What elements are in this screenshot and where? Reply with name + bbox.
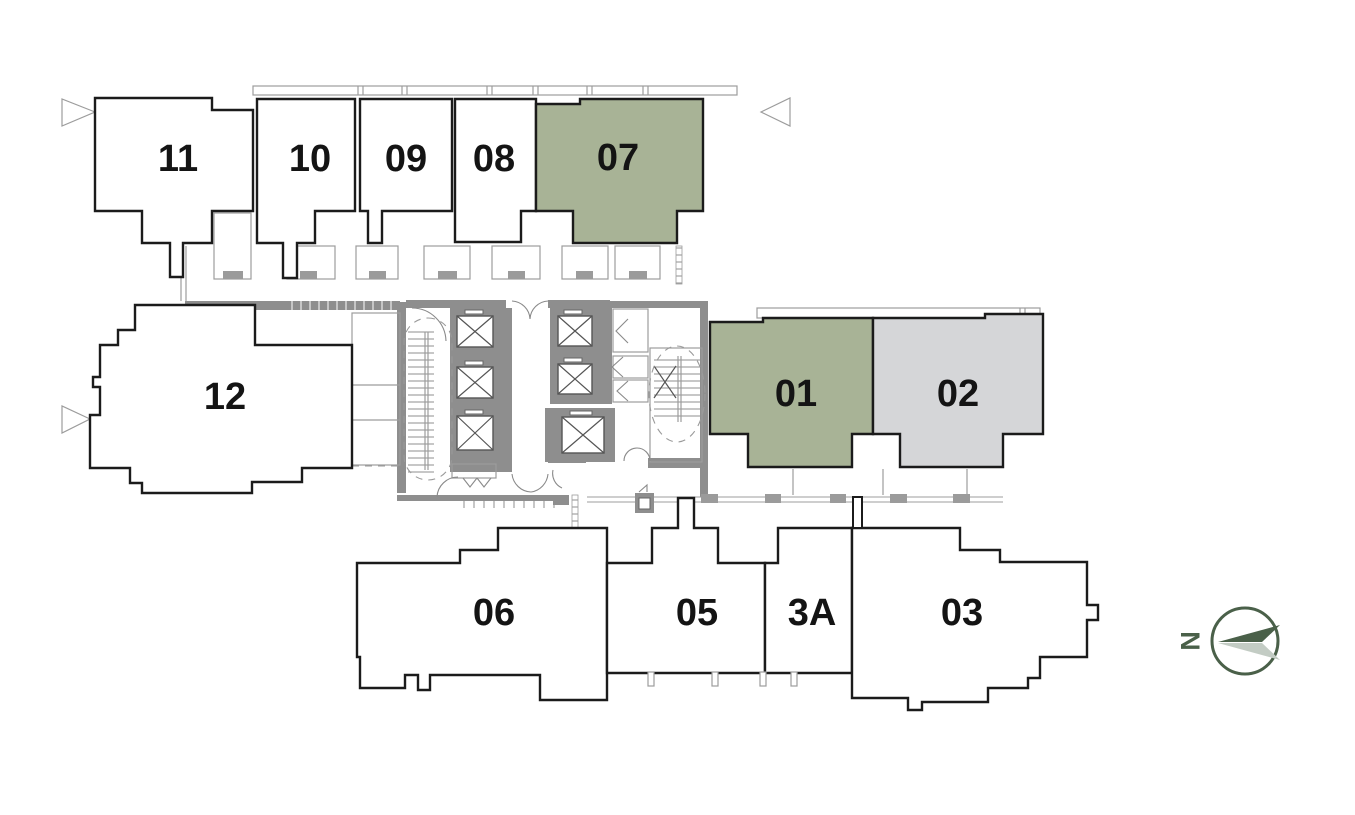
unit-05-label: 05 — [676, 592, 718, 634]
unit-01-label: 01 — [775, 373, 817, 415]
unit-11-label: 11 — [158, 138, 198, 180]
floor-plan-svg: 11 10 09 08 07 12 01 02 06 05 3A 03 N — [0, 0, 1355, 815]
unit-07-label: 07 — [597, 137, 639, 179]
flag-icon-west — [62, 406, 90, 433]
south-terrace-rails — [587, 469, 1003, 513]
compass-arrow-light-icon — [1218, 643, 1280, 660]
unit-11-shape[interactable] — [95, 98, 253, 277]
unit-03-label: 03 — [941, 592, 983, 634]
unit-08-label: 08 — [473, 138, 515, 180]
unit-06-label: 06 — [473, 592, 515, 634]
unit-02-label: 02 — [937, 373, 979, 415]
service-door-icon — [612, 319, 628, 401]
unit12-side-rooms — [352, 313, 400, 466]
unit-09-label: 09 — [385, 138, 427, 180]
floor-plan-page: 11 10 09 08 07 12 01 02 06 05 3A 03 N — [0, 0, 1355, 815]
parapet-strip — [253, 86, 737, 95]
stairs-icon — [408, 328, 434, 474]
unit-10-shape[interactable] — [257, 99, 355, 278]
compass: N — [1175, 608, 1280, 674]
door-swing-icon — [412, 301, 650, 497]
flag-icon-northeast — [761, 98, 790, 126]
unit-05-shape[interactable] — [607, 498, 765, 673]
compass-arrow-dark-icon — [1218, 625, 1280, 642]
compass-north-label: N — [1175, 631, 1205, 651]
unit-3A-label: 3A — [788, 592, 837, 634]
flag-icon-northwest — [62, 99, 95, 126]
unit-12-label: 12 — [204, 376, 246, 418]
unit-10-label: 10 — [289, 138, 331, 180]
